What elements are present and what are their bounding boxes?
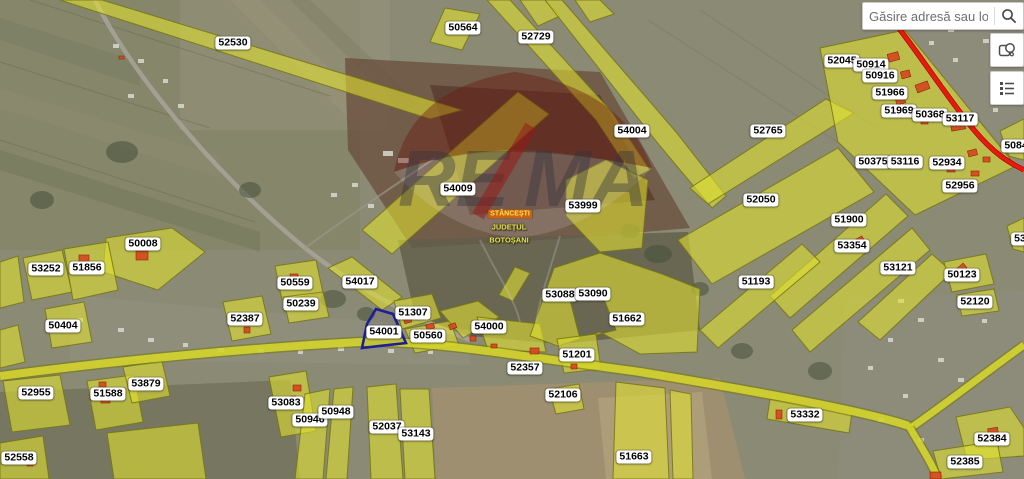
basemap-gallery-button[interactable]: [990, 33, 1024, 67]
search-box: [862, 2, 1024, 30]
search-input[interactable]: [863, 5, 994, 27]
map-application: RE MA 5253050564527295400452045509145091…: [0, 0, 1024, 479]
county-label-line2: BOTOȘANI: [489, 236, 528, 245]
county-label-line1: JUDEȚUL: [492, 223, 527, 232]
magnifier-icon: [1001, 8, 1017, 24]
basemap-gallery-icon: [998, 41, 1016, 59]
legend-button[interactable]: [990, 71, 1024, 105]
locality-label: STÂNCEȘTI: [488, 210, 532, 219]
search-button[interactable]: [995, 4, 1023, 28]
legend-list-icon: [998, 79, 1016, 97]
watermark-ma: MA: [524, 134, 648, 223]
